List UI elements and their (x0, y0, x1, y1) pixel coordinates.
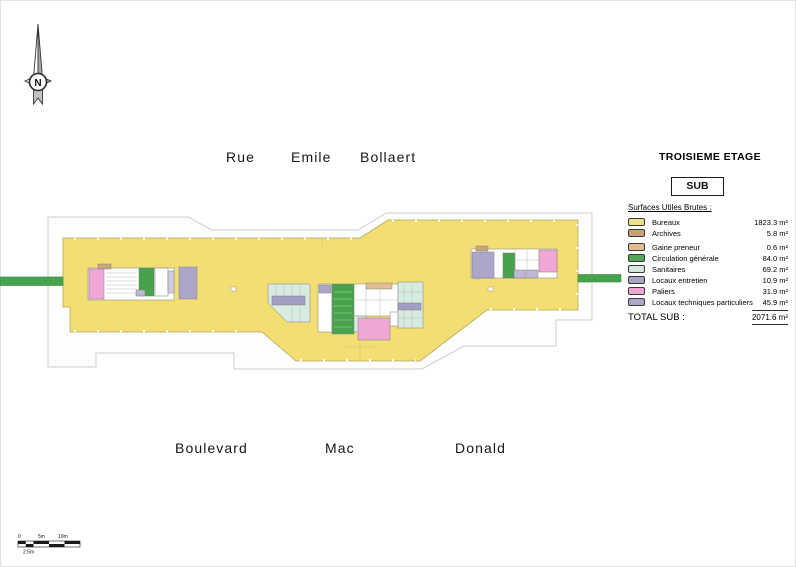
legend-row-paliers: Paliers 31.9 m² (628, 287, 788, 295)
street-bottom-word-donald: Donald (455, 440, 506, 456)
street-top-word-rue: Rue (226, 149, 255, 165)
legend-row-bureaux: Bureaux 1823.3 m² (628, 218, 788, 226)
legend-row-locaux-techniques: Locaux techniques particuliers 45.9 m² (628, 298, 788, 306)
circulation-bar-east (578, 275, 621, 283)
archives-swatch (628, 229, 645, 237)
left-core (88, 264, 197, 300)
floor-title: TROISIEME ETAGE (628, 151, 792, 163)
scale-bar: 0 5m 10m 2.5m (18, 534, 80, 556)
street-top-word-bollaert: Bollaert (360, 149, 416, 165)
svg-text:0: 0 (18, 534, 21, 540)
legend-row-sanitaires: Sanitaires 69.2 m² (628, 265, 788, 273)
right-core (471, 246, 557, 278)
legend-total-row: TOTAL SUB : 2071.6 m² (628, 310, 788, 325)
circulation-swatch (628, 254, 645, 262)
street-bottom-word-mac: Mac (325, 440, 355, 456)
svg-text:2.5m: 2.5m (23, 550, 34, 556)
gaine-preneur-swatch (628, 243, 645, 251)
total-label: TOTAL SUB : (628, 312, 752, 323)
north-arrow: N (25, 24, 51, 104)
total-value: 2071.6 m² (752, 310, 788, 325)
legend-row-circulation: Circulation générale 84.0 m² (628, 254, 788, 262)
legend: Surfaces Utiles Brutes : Bureaux 1823.3 … (628, 203, 788, 325)
north-label: N (34, 78, 41, 89)
legend-row-locaux-entretien: Locaux entretien 10.9 m² (628, 276, 788, 284)
street-top-word-emile: Emile (291, 149, 332, 165)
sub-badge: SUB (671, 177, 724, 196)
street-bottom-word-boulevard: Boulevard (175, 440, 248, 456)
legend-heading: Surfaces Utiles Brutes : (628, 203, 788, 212)
svg-text:5m: 5m (38, 534, 45, 540)
floorplan-sheet: N 0 5m 10m 2.5m Rue Emile Bollaert Boule… (0, 0, 796, 567)
locaux-entretien-swatch (628, 276, 645, 284)
locaux-techniques-swatch (628, 298, 645, 306)
paliers-swatch (628, 287, 645, 295)
svg-text:10m: 10m (58, 534, 68, 540)
legend-row-archives: Archives 5.8 m² (628, 229, 788, 237)
building-footprint-inner-line (556, 320, 592, 346)
legend-row-gaine-preneur: Gaine preneur 0.6 m² (628, 243, 788, 251)
sanitaires-swatch (628, 265, 645, 273)
bureaux-swatch (628, 218, 645, 226)
circulation-bar-west (0, 277, 63, 286)
